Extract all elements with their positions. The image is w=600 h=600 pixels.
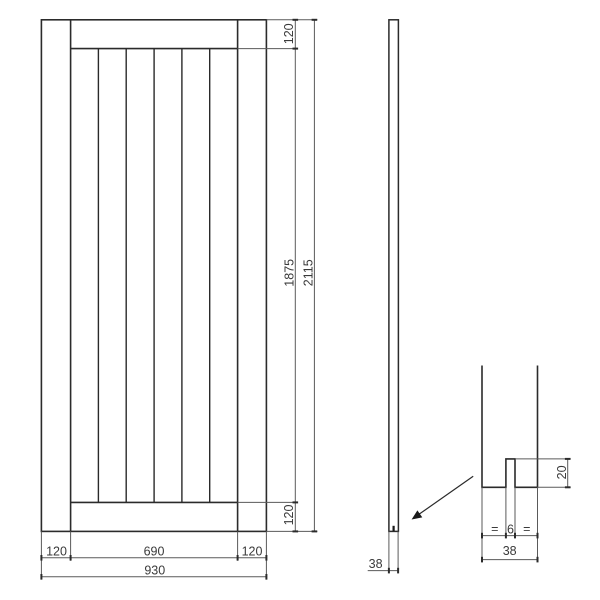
svg-text:930: 930: [144, 564, 165, 578]
svg-text:6: 6: [507, 522, 514, 536]
svg-text:1875: 1875: [282, 259, 296, 287]
svg-text:690: 690: [144, 544, 165, 558]
svg-text:120: 120: [282, 23, 296, 44]
svg-text:38: 38: [503, 544, 517, 558]
svg-text:120: 120: [282, 505, 296, 526]
svg-text:=: =: [491, 522, 498, 536]
svg-text:38: 38: [369, 557, 383, 571]
svg-text:120: 120: [242, 544, 263, 558]
svg-text:=: =: [523, 522, 530, 536]
svg-text:20: 20: [555, 465, 569, 479]
svg-text:2115: 2115: [302, 259, 316, 286]
svg-text:120: 120: [46, 544, 67, 558]
